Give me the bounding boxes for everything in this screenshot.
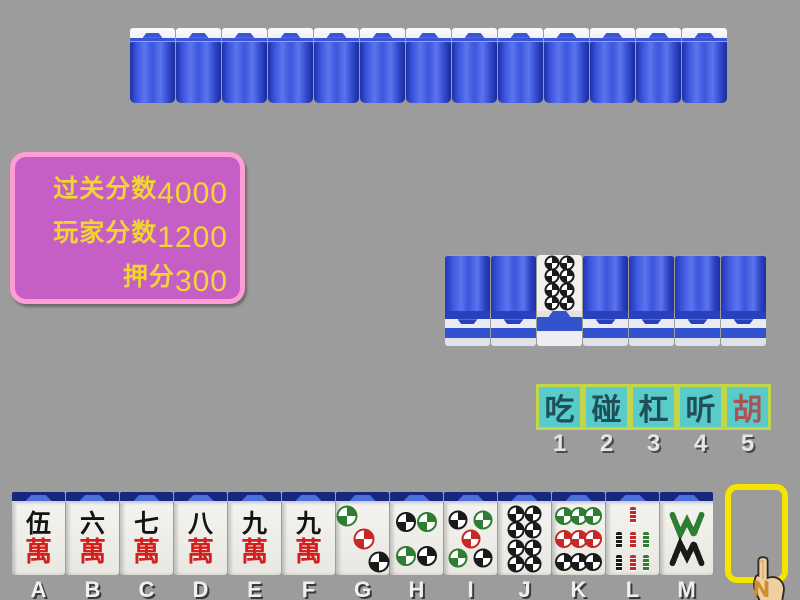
hand-tile-H[interactable] [390,492,443,575]
tile-top-edge [498,28,543,41]
bamboo-stick [630,507,636,523]
wan-characters: 伍萬 [12,503,65,575]
stake-value: 300 [175,251,228,299]
pass-score-value: 4000 [157,163,228,211]
wan-characters: 九萬 [228,503,281,575]
tile-edge-band [721,338,766,346]
tile-top-edge [130,28,175,41]
tile-edge-band [445,338,490,346]
hand-letter-D: D [174,577,227,600]
tile-top-edge [590,28,635,41]
tile-edge-band [583,328,628,338]
circle-dot [336,505,357,526]
tile-face-circle-8 [537,255,582,311]
opponent-tile-back [360,28,405,103]
action-hotkeys: 1 2 3 4 5 [536,430,771,458]
wan-man-char: 萬 [79,538,106,566]
tile-face-wan-9: 九萬 [282,503,335,575]
tile-top-edge [636,28,681,41]
score-panel: 过关分数 4000 玩家分数 1200 押分 300 [10,152,245,304]
meld-tile-face-down [721,255,766,346]
meld-tile-face-down [675,255,720,346]
tile-top-edge [552,492,605,501]
tile-back [445,255,490,311]
hand-letter-I: I [444,577,497,600]
hand-letter-F: F [282,577,335,600]
tile-edge-band [491,311,536,319]
hand-tile-D[interactable]: 八萬 [174,492,227,575]
wan-characters: 八萬 [174,503,227,575]
opponent-hand-row [130,28,727,103]
wan-number-char: 九 [296,512,321,538]
circle-dot [508,505,525,522]
circle-dot [474,548,493,567]
hand-letter-H: H [390,577,443,600]
opponent-tile-back [314,28,359,103]
tile-top-edge [66,492,119,501]
hand-letter-B: B [66,577,119,600]
tile-face-wan-6: 六萬 [66,503,119,575]
bamboo-stick [643,532,649,548]
hotkey-3: 3 [630,430,677,458]
tile-back [491,255,536,311]
circle-dot [584,530,602,548]
hand-tile-B[interactable]: 六萬 [66,492,119,575]
score-row-pass: 过关分数 4000 [25,165,228,209]
tile-back [314,41,359,103]
tile-back [675,255,720,311]
hand-letter-K: K [552,577,605,600]
circle-dot [524,539,541,556]
tile-edge-band [583,311,628,319]
wan-man-char: 萬 [133,538,160,566]
tile-top-edge [174,492,227,501]
score-row-stake: 押分 300 [25,253,228,297]
tile-top-edge [222,28,267,41]
tile-top-edge [452,28,497,41]
tile-top-edge [606,492,659,501]
circle-dot [369,552,390,573]
hand-letter-J: J [498,577,551,600]
hand-tile-A[interactable]: 伍萬 [12,492,65,575]
draw-slot-letter: N [753,576,769,600]
wan-number-char: 七 [134,512,159,538]
meld-tile-face-down [629,255,674,346]
tile-top-edge [314,28,359,41]
circle-dot [524,556,541,573]
tile-top-edge [176,28,221,41]
tile-back [268,41,313,103]
circle-dot [545,295,560,310]
tile-edge-band [629,311,674,319]
circle-dot [508,539,525,556]
tile-back [498,41,543,103]
opponent-tile-back [590,28,635,103]
opponent-tile-back [222,28,267,103]
bamboo-stick [630,555,636,571]
tile-edge-band [537,331,582,346]
circle-dot [448,548,467,567]
opponent-tile-back [268,28,313,103]
circle-dot [559,295,574,310]
hand-tile-I[interactable] [444,492,497,575]
hand-tile-G[interactable] [336,492,389,575]
tile-face-wan-8: 八萬 [174,503,227,575]
tile-back [583,255,628,311]
hand-tile-J[interactable] [498,492,551,575]
gang-button[interactable]: 杠 [630,384,677,430]
tile-edge-band [675,328,720,338]
tile-edge-band [445,328,490,338]
meld-row [445,255,766,346]
tile-face-circle-9 [552,503,605,575]
wan-man-char: 萬 [295,538,322,566]
tile-face-wan-5: 伍萬 [12,503,65,575]
circle-dot [448,511,467,530]
peng-button[interactable]: 碰 [583,384,630,430]
wan-man-char: 萬 [241,538,268,566]
chi-button[interactable]: 吃 [536,384,583,430]
hu-button[interactable]: 胡 [724,384,771,430]
circle-dot [474,511,493,530]
player-score-label: 玩家分数 [25,213,157,249]
tile-back [629,255,674,311]
tile-edge-band [445,311,490,319]
hand-letter-L: L [606,577,659,600]
tile-face-bamboo-7 [606,503,659,575]
tile-top-edge [406,28,451,41]
circle-dot [417,546,437,566]
stake-label: 押分 [25,257,175,293]
tile-top-edge [682,28,727,41]
tile-edge-band [721,311,766,319]
bamboo-stick [616,555,622,571]
hotkey-2: 2 [583,430,630,458]
circle-dot [508,556,525,573]
tile-back [544,41,589,103]
circle-dot [524,505,541,522]
tile-back [636,41,681,103]
opponent-tile-back [452,28,497,103]
tile-edge-band [629,338,674,346]
hand-tile-F[interactable]: 九萬 [282,492,335,575]
circle-dot [353,529,374,550]
tile-edge-band [675,338,720,346]
pass-score-label: 过关分数 [25,169,157,205]
player-score-value: 1200 [157,207,228,255]
circle-dot [584,553,602,571]
wan-characters: 七萬 [120,503,173,575]
tile-face-circle-3 [336,503,389,575]
circle-dot [417,512,437,532]
tile-face-bamboo-8 [660,503,713,575]
tile-back [590,41,635,103]
tile-top-edge [282,492,335,501]
tile-edge-band [491,338,536,346]
tile-back [360,41,405,103]
hand-letter-C: C [120,577,173,600]
circle-dot [461,530,480,549]
tile-top-edge [390,492,443,501]
circle-dot [508,522,525,539]
tile-top-edge [268,28,313,41]
game-board: 过关分数 4000 玩家分数 1200 押分 300 吃 碰 杠 听 胡 1 2… [0,0,800,600]
wan-number-char: 六 [80,512,105,538]
tile-edge-band [721,328,766,338]
tile-face-circle-4 [390,503,443,575]
tile-top-edge [544,28,589,41]
tile-edge-band [537,317,582,331]
tile-top-edge [336,492,389,501]
hotkey-5: 5 [724,430,771,458]
meld-tile-face-down [445,255,490,346]
tile-face-circle-5 [444,503,497,575]
opponent-tile-back [544,28,589,103]
tile-edge-band [675,311,720,319]
meld-tile-face-up [537,255,582,346]
tile-top-edge [660,492,713,501]
hand-tile-M[interactable] [660,492,713,575]
hand-tile-K[interactable] [552,492,605,575]
score-row-player: 玩家分数 1200 [25,209,228,253]
player-hand: 伍萬六萬七萬八萬九萬九萬 [12,492,713,575]
hand-letter-M: M [660,577,713,600]
wan-number-char: 八 [188,512,213,538]
circle-dot [396,546,416,566]
hand-letter-E: E [228,577,281,600]
hand-tile-C[interactable]: 七萬 [120,492,173,575]
wan-man-char: 萬 [187,538,214,566]
hotkey-4: 4 [677,430,724,458]
circle-dot [396,512,416,532]
tile-back [406,41,451,103]
tile-top-edge [498,492,551,501]
meld-tile-face-down [491,255,536,346]
tile-top-edge [444,492,497,501]
tile-top-edge [120,492,173,501]
tile-face-wan-7: 七萬 [120,503,173,575]
opponent-tile-back [130,28,175,103]
action-bar: 吃 碰 杠 听 胡 [536,384,771,430]
bamboo-stick [643,555,649,571]
hand-letter-G: G [336,577,389,600]
meld-tile-face-down [583,255,628,346]
tile-top-edge [228,492,281,501]
tile-edge-band [491,328,536,338]
hand-letter-A: A [12,577,65,600]
tile-top-edge [12,492,65,501]
tile-back [452,41,497,103]
tile-face-circle-8 [498,503,551,575]
circle-dot [584,507,602,525]
tile-back [721,255,766,311]
tile-face-wan-9: 九萬 [228,503,281,575]
bamboo-stick [616,532,622,548]
tile-back [130,41,175,103]
hand-tile-L[interactable] [606,492,659,575]
opponent-tile-back [682,28,727,103]
wan-number-char: 伍 [26,512,51,538]
wan-characters: 九萬 [282,503,335,575]
opponent-tile-back [176,28,221,103]
hand-tile-E[interactable]: 九萬 [228,492,281,575]
hotkey-1: 1 [536,430,583,458]
bamboo-stick [630,532,636,548]
opponent-tile-back [498,28,543,103]
wan-number-char: 九 [242,512,267,538]
tile-edge-band [583,338,628,346]
tile-edge-band [629,328,674,338]
tile-top-edge [360,28,405,41]
circle-dot [524,522,541,539]
tile-back [222,41,267,103]
ting-button[interactable]: 听 [677,384,724,430]
opponent-tile-back [636,28,681,103]
hand-letter-row: ABCDEFGHIJKLM [12,577,713,600]
wan-man-char: 萬 [25,538,52,566]
bamboo-8-glyph [666,508,708,570]
opponent-tile-back [406,28,451,103]
tile-back [682,41,727,103]
wan-characters: 六萬 [66,503,119,575]
tile-back [176,41,221,103]
